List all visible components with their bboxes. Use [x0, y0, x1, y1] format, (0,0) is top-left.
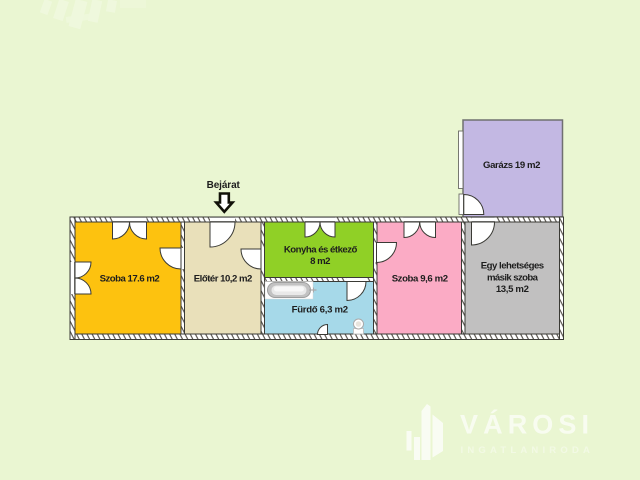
svg-text:8 m2: 8 m2 — [310, 256, 330, 267]
svg-text:INGATLANIRODA: INGATLANIRODA — [461, 445, 595, 456]
svg-text:másik szoba: másik szoba — [487, 272, 539, 283]
svg-text:Szoba 9,6 m2: Szoba 9,6 m2 — [392, 273, 448, 284]
svg-text:VÁROSI: VÁROSI — [460, 409, 594, 440]
svg-text:Fürdő 6,3 m2: Fürdő 6,3 m2 — [292, 305, 348, 316]
svg-text:13,5 m2: 13,5 m2 — [496, 284, 529, 295]
svg-text:Garázs 19 m2: Garázs 19 m2 — [483, 160, 540, 171]
svg-text:Egy lehetséges: Egy lehetséges — [481, 260, 544, 271]
svg-text:Szoba 17.6 m2: Szoba 17.6 m2 — [100, 274, 160, 285]
svg-text:Konyha és étkező: Konyha és étkező — [284, 245, 358, 256]
svg-text:Bejárat: Bejárat — [207, 180, 241, 191]
svg-text:Előtér 10,2 m2: Előtér 10,2 m2 — [194, 274, 252, 285]
